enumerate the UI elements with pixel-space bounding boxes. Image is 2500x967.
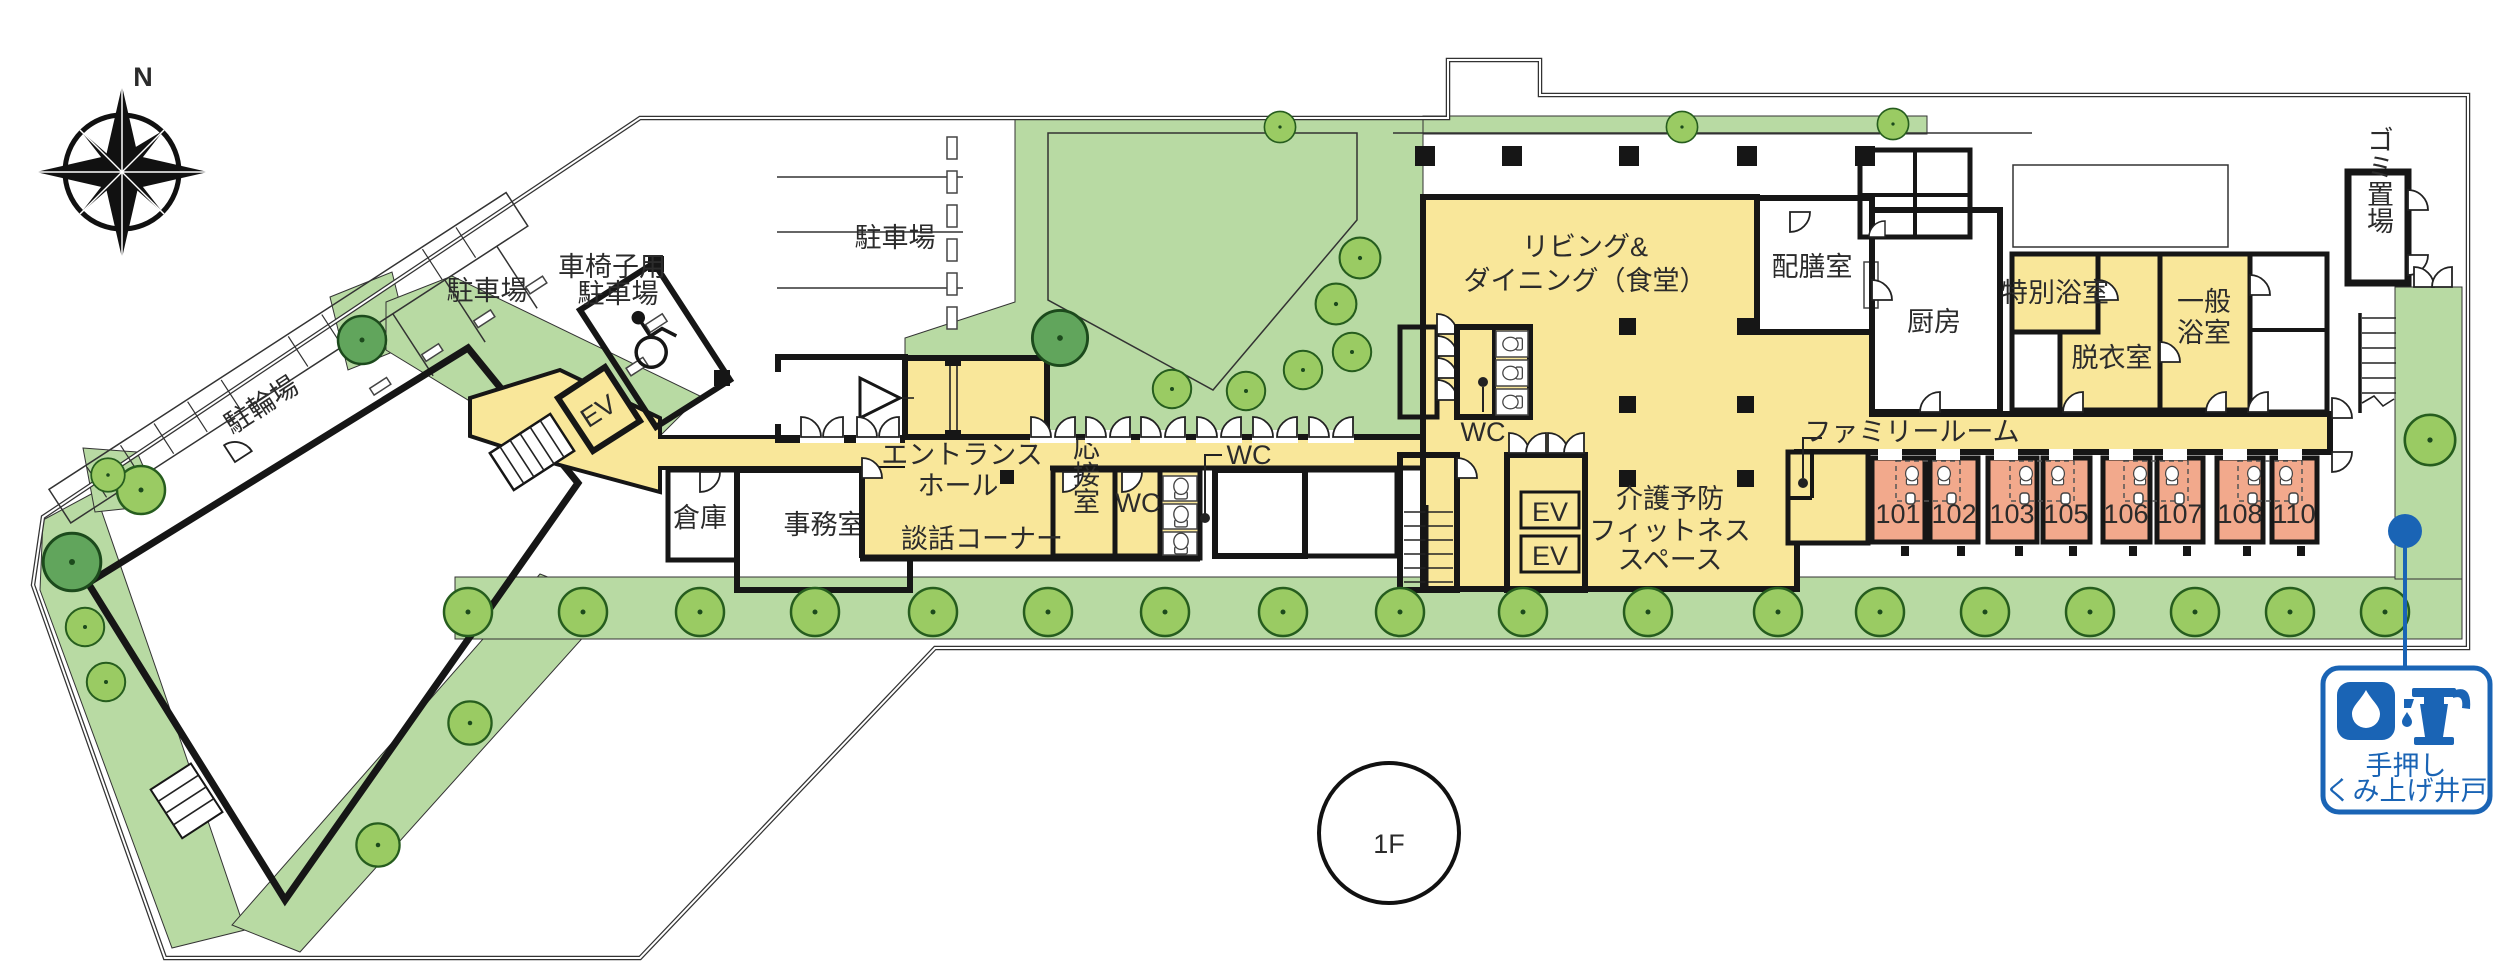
general-bath-label-1: 一般 <box>2177 287 2231 317</box>
special-bath-label: 特別浴室 <box>2001 278 2109 308</box>
guest-rooms: 101 102 103 105 106 107 108 110 <box>1872 449 2317 556</box>
entrance-lobby <box>905 358 1047 438</box>
general-bath-label-2: 浴室 <box>2177 318 2231 348</box>
floor-badge: 1F <box>1319 763 1459 903</box>
ev-1-label: EV <box>1532 497 1568 527</box>
kitchen-label: 厨房 <box>1907 307 1961 337</box>
svg-text:106: 106 <box>2103 499 2148 529</box>
garbage-area: ゴミ置場 <box>2348 126 2428 283</box>
terrace-canopy <box>2013 165 2228 247</box>
entrance-hall-label-1: エントランス <box>881 440 1042 470</box>
wheelchair-parking-label-1: 車椅子用 <box>558 252 666 282</box>
floor-label: 1F <box>1373 829 1405 859</box>
compass: N <box>36 62 208 258</box>
wc-hall-cubicles <box>1160 470 1200 558</box>
garbage-area-label: ゴミ置場 <box>2363 126 2394 234</box>
hall-utility-room <box>1305 470 1397 556</box>
family-room <box>1788 438 1868 543</box>
well-callout: 手押し くみ上げ井戸 <box>2323 514 2490 812</box>
lounge-corner-label: 談話コーナー <box>901 524 1063 554</box>
svg-text:108: 108 <box>2217 499 2262 529</box>
kitchen-pantry-block <box>1860 150 1970 237</box>
wc-hall-label: WC <box>1116 488 1161 518</box>
well-label-2: くみ上げ井戸 <box>2324 776 2487 806</box>
fitness-label-1: 介護予防 <box>1616 484 1724 514</box>
svg-text:110: 110 <box>2272 499 2315 529</box>
east-utility-block <box>2248 254 2327 412</box>
fitness-label-3: スペース <box>1618 545 1723 575</box>
water-drop-icon <box>2337 682 2395 740</box>
entrance-hall-label-2: ホール <box>918 471 999 501</box>
wc-living-label: WC <box>1461 417 1506 447</box>
svg-text:103: 103 <box>1989 499 2034 529</box>
porch-columns <box>1415 146 1875 166</box>
floor-plan: 駐車場 駐輪場 駐車場 車椅子用 駐車場 EV 倉庫 事務室 <box>0 0 2500 967</box>
svg-text:107: 107 <box>2157 499 2202 529</box>
reception-label: 応接室 <box>1069 433 1100 514</box>
svg-text:105: 105 <box>2043 499 2088 529</box>
entrance-opening <box>774 372 782 424</box>
bicycle-parking-label: 駐輪場 <box>219 370 303 439</box>
office-label: 事務室 <box>784 510 865 540</box>
fitness-label-2: フィットネス <box>1589 516 1750 546</box>
bath-utility <box>2012 332 2060 410</box>
storage-door <box>700 472 720 492</box>
site-greenery <box>40 116 2462 952</box>
corridor-end-door <box>2332 398 2352 472</box>
east-staircase <box>2360 313 2396 413</box>
parking-dash-marks <box>947 137 957 329</box>
hall-door <box>224 434 252 462</box>
floor-plan-page: 駐車場 駐輪場 駐車場 車椅子用 駐車場 EV 倉庫 事務室 <box>0 0 2500 967</box>
svg-text:102: 102 <box>1931 499 1976 529</box>
bath-block: 特別浴室 脱衣室 一般 浴室 <box>2001 254 2250 412</box>
wc-corridor-label: WC <box>1227 440 1272 470</box>
living-label-1: リビング& <box>1522 232 1648 262</box>
parking-north: 駐車場 <box>777 137 963 329</box>
entrance-triangle-icon <box>860 378 900 418</box>
parking-north-label: 駐車場 <box>855 223 936 253</box>
wheelchair-parking-label-2: 駐車場 <box>578 279 659 309</box>
changing-room-label: 脱衣室 <box>2072 343 2153 373</box>
parking-west-label: 駐車場 <box>447 276 528 306</box>
serving-room-label: 配膳室 <box>1772 252 1853 282</box>
hall-storage-room <box>1215 470 1305 556</box>
kitchen-room: 厨房 <box>1872 210 2000 412</box>
storage-label: 倉庫 <box>673 503 727 533</box>
north-indicator: N <box>133 62 153 92</box>
garden-door <box>2414 267 2452 287</box>
room-numbers: 101 102 103 105 106 107 108 110 <box>1875 499 2315 529</box>
well-location-dot <box>2388 514 2422 548</box>
living-label-2: ダイニング（食堂） <box>1464 266 1707 296</box>
svg-text:101: 101 <box>1875 499 1920 529</box>
family-room-label: ファミリールーム <box>1804 417 2019 447</box>
ev-2-label: EV <box>1532 541 1568 571</box>
